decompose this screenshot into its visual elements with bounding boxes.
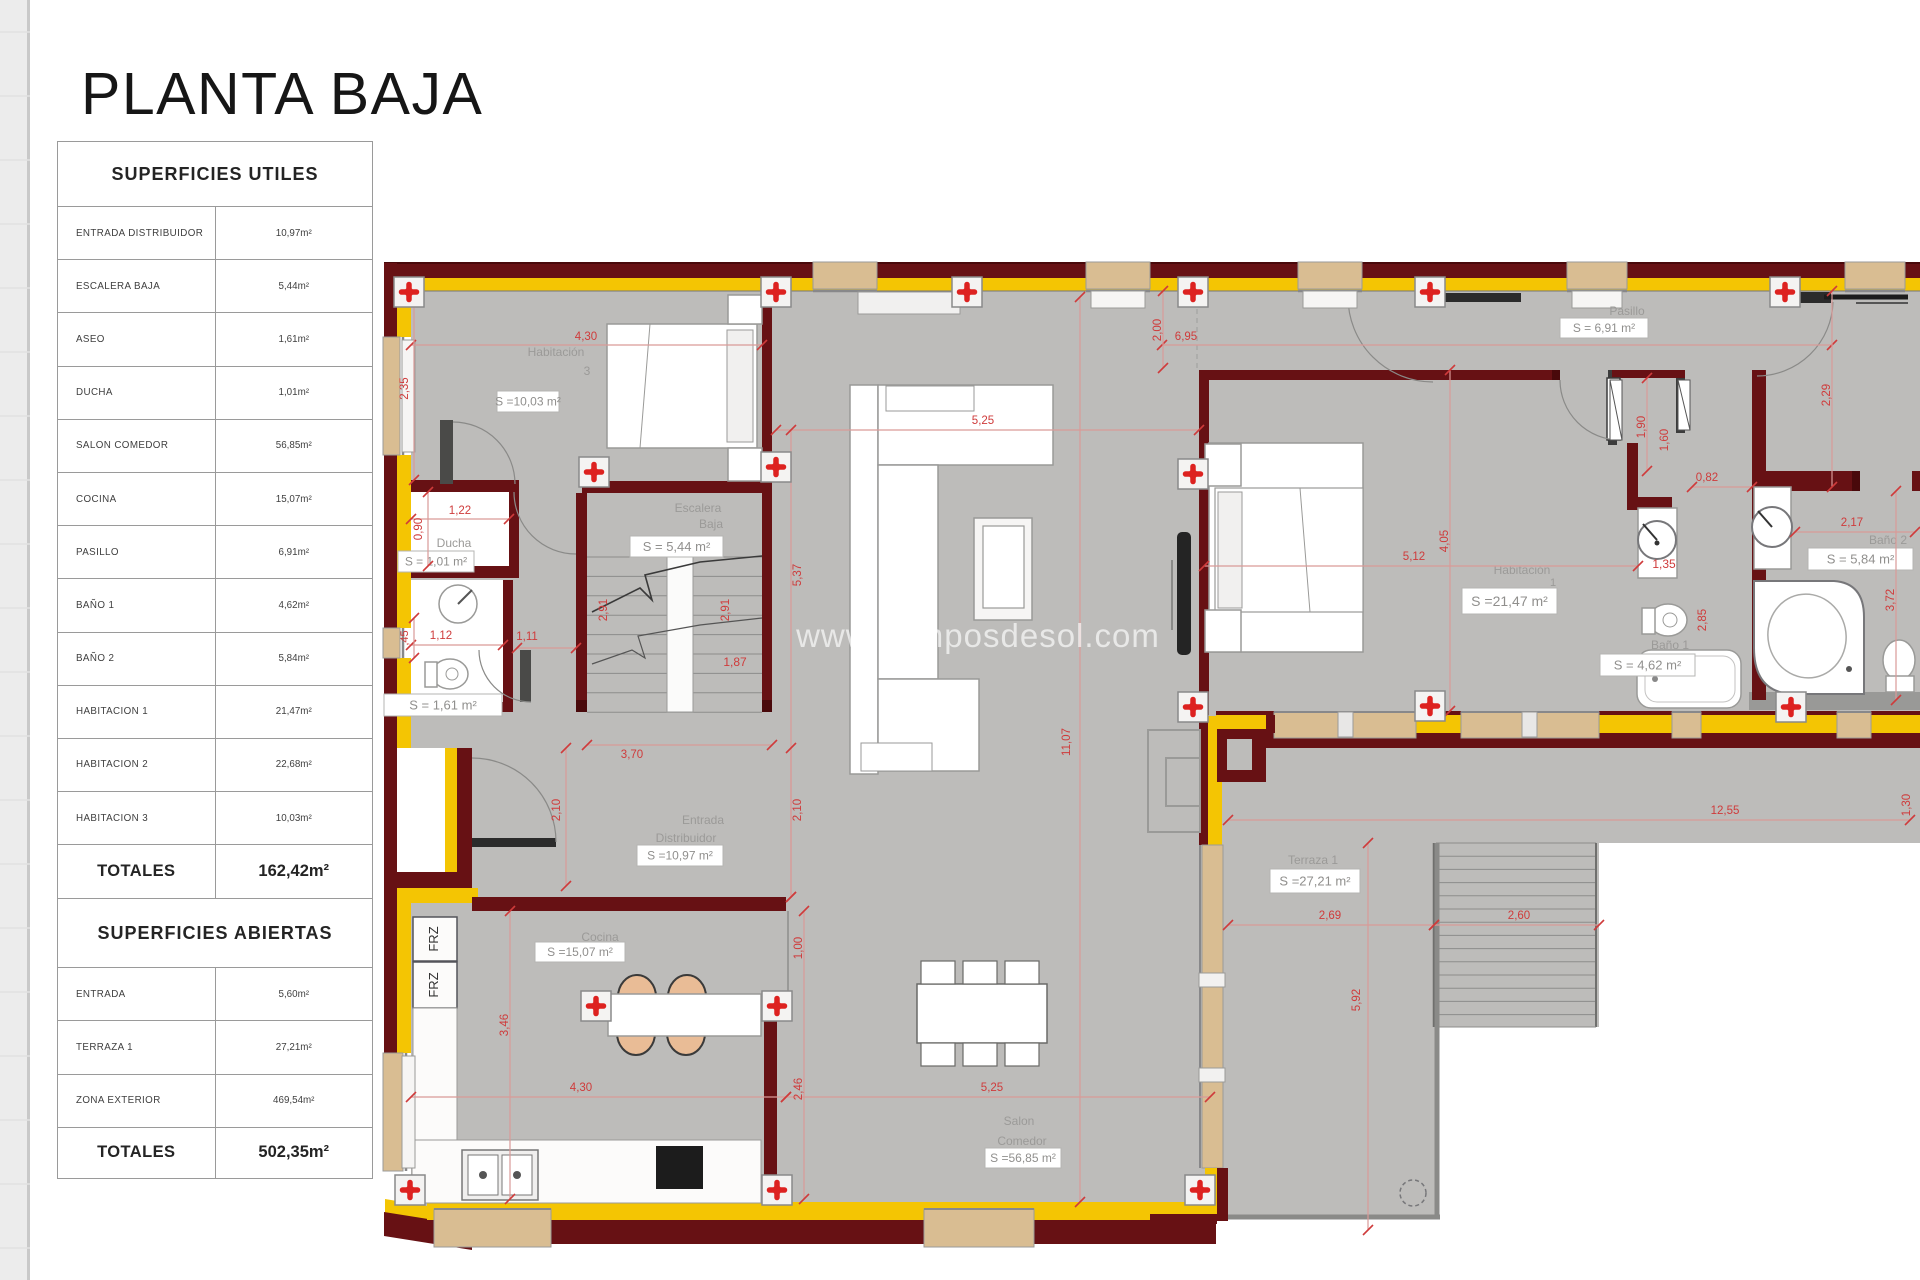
svg-text:Habitación: Habitación [1494, 563, 1551, 577]
svg-text:3,72: 3,72 [1885, 589, 1897, 611]
svg-text:Baño 2: Baño 2 [1869, 533, 1907, 547]
svg-text:5,92: 5,92 [1351, 989, 1363, 1011]
svg-text:2,46: 2,46 [793, 1078, 805, 1100]
svg-text:S =10,03 m²: S =10,03 m² [495, 395, 561, 409]
svg-text:2,60: 2,60 [1508, 910, 1530, 922]
svg-text:1: 1 [1550, 577, 1556, 589]
svg-text:5,37: 5,37 [792, 564, 804, 586]
svg-text:S = 1,61 m²: S = 1,61 m² [409, 698, 477, 713]
svg-text:S =27,21 m²: S =27,21 m² [1279, 874, 1351, 889]
svg-text:4,05: 4,05 [1439, 530, 1451, 552]
svg-text:S = 5,44 m²: S = 5,44 m² [643, 539, 711, 554]
svg-text:3: 3 [584, 364, 591, 378]
svg-text:1,87: 1,87 [723, 655, 747, 669]
svg-text:1,22: 1,22 [449, 505, 471, 517]
svg-text:1,00: 1,00 [793, 937, 805, 959]
svg-text:Baja: Baja [699, 517, 723, 531]
svg-text:2,91: 2,91 [598, 599, 610, 621]
svg-text:0,82: 0,82 [1696, 472, 1718, 484]
svg-text:2,35: 2,35 [399, 377, 411, 399]
svg-text:Baño 1: Baño 1 [1651, 638, 1689, 652]
svg-text:3,70: 3,70 [621, 749, 643, 761]
svg-text:Terraza 1: Terraza 1 [1288, 853, 1338, 867]
svg-text:2,85: 2,85 [1697, 609, 1709, 631]
svg-text:1,60: 1,60 [1659, 429, 1671, 451]
svg-text:Distribuidor: Distribuidor [656, 831, 717, 845]
svg-text:Pasillo: Pasillo [1609, 304, 1645, 318]
svg-text:Entrada: Entrada [682, 813, 724, 827]
svg-text:FRZ: FRZ [426, 972, 441, 997]
svg-text:S = 1,01 m²: S = 1,01 m² [405, 555, 467, 569]
svg-text:2,29: 2,29 [1821, 384, 1833, 406]
svg-text:1,90: 1,90 [1636, 416, 1648, 438]
svg-text:S =10,97 m²: S =10,97 m² [647, 849, 713, 863]
svg-text:1,30: 1,30 [1901, 794, 1913, 816]
svg-text:3,46: 3,46 [499, 1014, 511, 1036]
svg-text:Salon: Salon [1004, 1114, 1035, 1128]
svg-text:2,69: 2,69 [1319, 910, 1341, 922]
svg-text:S = 4,62 m²: S = 4,62 m² [1614, 658, 1682, 673]
svg-text:Habitación: Habitación [528, 345, 585, 359]
svg-text:2,10: 2,10 [792, 799, 804, 821]
svg-text:FRZ: FRZ [426, 926, 441, 951]
svg-text:S =15,07 m²: S =15,07 m² [547, 945, 613, 959]
svg-text:1,11: 1,11 [516, 631, 538, 643]
svg-text:4,30: 4,30 [575, 331, 597, 343]
svg-text:5,25: 5,25 [972, 415, 994, 427]
svg-text:4,30: 4,30 [570, 1082, 592, 1094]
svg-text:11,07: 11,07 [1061, 728, 1073, 756]
svg-text:5,12: 5,12 [1403, 551, 1425, 563]
svg-text:6,95: 6,95 [1175, 331, 1197, 343]
svg-text:Comedor: Comedor [997, 1134, 1046, 1148]
svg-text:5,25: 5,25 [981, 1082, 1003, 1094]
svg-text:S = 5,84 m²: S = 5,84 m² [1827, 552, 1895, 567]
svg-text:S = 6,91 m²: S = 6,91 m² [1573, 321, 1635, 335]
svg-text:0,90: 0,90 [413, 518, 425, 540]
svg-text:,45: ,45 [399, 630, 411, 645]
svg-text:Escalera: Escalera [675, 501, 722, 515]
svg-text:www.camposdesol.com: www.camposdesol.com [795, 617, 1160, 654]
svg-text:12,55: 12,55 [1711, 805, 1740, 817]
svg-text:S =21,47 m²: S =21,47 m² [1471, 593, 1548, 609]
svg-text:2,91: 2,91 [720, 599, 732, 621]
svg-text:S =56,85 m²: S =56,85 m² [990, 1151, 1056, 1165]
svg-text:1,12: 1,12 [430, 630, 452, 642]
svg-text:2,10: 2,10 [551, 799, 563, 821]
svg-text:Ducha: Ducha [437, 536, 472, 550]
svg-text:1,35: 1,35 [1652, 557, 1676, 571]
svg-text:2,00: 2,00 [1152, 319, 1164, 341]
svg-text:2,17: 2,17 [1841, 517, 1863, 529]
